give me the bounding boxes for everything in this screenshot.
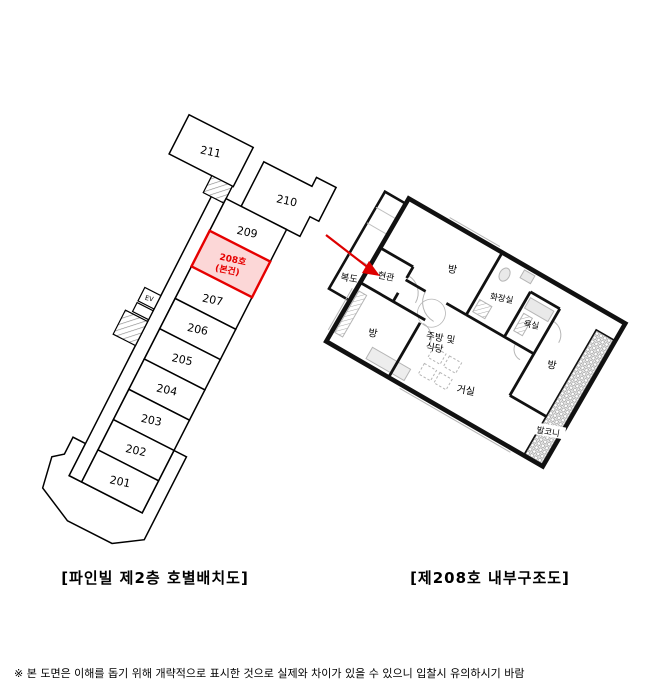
label-toilet: 화장실 <box>489 291 514 306</box>
label-room-top: 방 <box>447 263 458 276</box>
unit-interior-diagram: 복도 현관 방 화장실 욕실 방 방 주방 및 식당 거실 발코니 <box>308 142 658 572</box>
right-diagram-caption: [제208호 내부구조도] <box>385 567 595 588</box>
label-kitchen-line2: 식당 <box>425 342 444 356</box>
left-diagram-caption: [파인빌 제2층 호별배치도] <box>30 567 280 588</box>
label-living: 거실 <box>456 383 476 398</box>
label-room-left: 방 <box>367 327 378 340</box>
building-layout-diagram: 211 210 209 207 206 205 204 203 202 201 … <box>28 96 343 596</box>
floorplan-page: 211 210 209 207 206 205 204 203 202 201 … <box>0 0 667 700</box>
label-room-right: 방 <box>546 359 557 372</box>
label-entrance: 현관 <box>377 270 395 284</box>
disclaimer-note: ※ 본 도면은 이해를 돕기 위해 개략적으로 표시한 것으로 실제와 차이가 … <box>14 665 659 681</box>
